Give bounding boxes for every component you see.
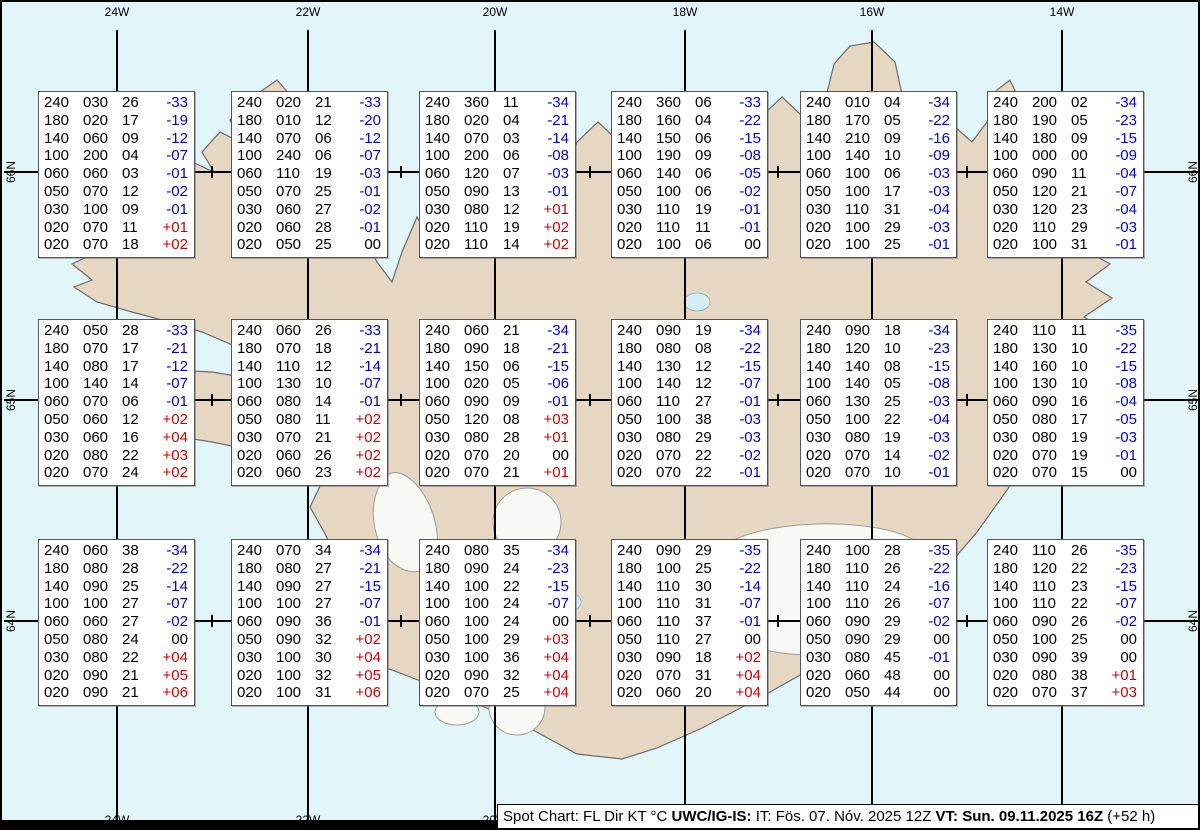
- dir-value: 080: [276, 560, 315, 578]
- fl-value: 050: [993, 411, 1032, 429]
- spot-row: 18016004-22: [617, 112, 761, 130]
- fl-value: 020: [806, 236, 845, 254]
- spot-row: 06007006-01: [44, 393, 188, 411]
- kt-value: 21: [1071, 183, 1098, 201]
- temp-value: -19: [149, 112, 188, 130]
- dir-value: 090: [464, 340, 503, 358]
- temp-value: 00: [149, 631, 188, 649]
- fl-value: 100: [44, 147, 83, 165]
- spot-row: 06009026-02: [993, 613, 1137, 631]
- temp-value: -04: [1098, 393, 1137, 411]
- fl-value: 020: [806, 684, 845, 702]
- dir-value: 060: [83, 165, 122, 183]
- fl-value: 100: [425, 147, 464, 165]
- spot-row: 10010027-07: [44, 595, 188, 613]
- spot-row: 24009018-34: [806, 322, 950, 340]
- temp-value: -34: [722, 322, 761, 340]
- dir-value: 060: [464, 322, 503, 340]
- dir-value: 070: [276, 340, 315, 358]
- fl-value: 140: [993, 358, 1032, 376]
- temp-value: -08: [1098, 375, 1137, 393]
- spot-row: 03012023-04: [993, 201, 1137, 219]
- kt-value: 22: [503, 578, 530, 596]
- kt-value: 17: [122, 340, 149, 358]
- dir-value: 190: [656, 147, 695, 165]
- spot-row: 14011023-15: [993, 578, 1137, 596]
- dir-value: 120: [845, 340, 884, 358]
- fl-value: 030: [425, 429, 464, 447]
- kt-value: 28: [503, 429, 530, 447]
- spot-row: 05010029+03: [425, 631, 569, 649]
- fl-value: 060: [237, 165, 276, 183]
- kt-value: 26: [315, 322, 342, 340]
- temp-value: 00: [1098, 649, 1137, 667]
- kt-value: 17: [884, 183, 911, 201]
- dir-value: 130: [656, 358, 695, 376]
- temp-value: +03: [530, 631, 569, 649]
- dir-value: 100: [276, 667, 315, 685]
- kt-value: 25: [884, 236, 911, 254]
- spot-row: 18002004-21: [425, 112, 569, 130]
- kt-value: 23: [315, 464, 342, 482]
- temp-value: -23: [911, 340, 950, 358]
- kt-value: 05: [503, 375, 530, 393]
- dir-value: 070: [1032, 447, 1071, 465]
- kt-value: 19: [315, 165, 342, 183]
- dir-value: 070: [276, 542, 315, 560]
- spot-row: 05007025-01: [237, 183, 381, 201]
- spot-box: 24010028-3518011026-2214011024-161001102…: [800, 539, 957, 706]
- kt-value: 09: [695, 147, 722, 165]
- spot-row: 02007011+01: [44, 219, 188, 237]
- spot-row: 14011012-14: [237, 358, 381, 376]
- fl-value: 020: [237, 447, 276, 465]
- kt-value: 18: [315, 340, 342, 358]
- fl-value: 020: [425, 684, 464, 702]
- kt-value: 11: [1071, 165, 1098, 183]
- spot-box: 24009029-3518010025-2214011030-141001103…: [611, 539, 768, 706]
- fl-value: 030: [806, 429, 845, 447]
- spot-row: 06009016-04: [993, 393, 1137, 411]
- temp-value: +02: [342, 447, 381, 465]
- dir-value: 110: [845, 578, 884, 596]
- spot-row: 02009032+04: [425, 667, 569, 685]
- dir-value: 080: [83, 358, 122, 376]
- fl-value: 100: [806, 595, 845, 613]
- temp-value: +02: [342, 429, 381, 447]
- dir-value: 010: [276, 112, 315, 130]
- dir-value: 060: [276, 322, 315, 340]
- degree-tick: [400, 166, 402, 178]
- temp-value: -01: [722, 201, 761, 219]
- dir-value: 030: [83, 94, 122, 112]
- temp-value: 00: [722, 631, 761, 649]
- temp-value: +01: [1098, 667, 1137, 685]
- spot-row: 14008017-12: [44, 358, 188, 376]
- dir-value: 070: [464, 684, 503, 702]
- spot-row: 14021009-16: [806, 130, 950, 148]
- kt-value: 26: [884, 560, 911, 578]
- degree-tick: [589, 166, 591, 178]
- temp-value: +04: [722, 684, 761, 702]
- dir-value: 130: [845, 393, 884, 411]
- fl-value: 140: [44, 130, 83, 148]
- temp-value: -01: [530, 183, 569, 201]
- dir-value: 060: [83, 542, 122, 560]
- dir-value: 090: [1032, 649, 1071, 667]
- dir-value: 070: [656, 447, 695, 465]
- spot-row: 0200701500: [993, 464, 1137, 482]
- fl-value: 240: [617, 322, 656, 340]
- kt-value: 22: [695, 447, 722, 465]
- fl-value: 020: [425, 219, 464, 237]
- spot-row: 03008029-03: [617, 429, 761, 447]
- temp-value: -03: [911, 393, 950, 411]
- spot-row: 02007024+02: [44, 464, 188, 482]
- fl-value: 020: [993, 667, 1032, 685]
- fl-value: 180: [806, 560, 845, 578]
- spot-row: 0200702000: [425, 447, 569, 465]
- dir-value: 110: [1032, 595, 1071, 613]
- kt-value: 24: [503, 560, 530, 578]
- kt-value: 27: [315, 595, 342, 613]
- temp-value: -03: [722, 411, 761, 429]
- longitude-label-top: 24W: [105, 5, 130, 19]
- kt-value: 29: [695, 429, 722, 447]
- spot-row: 02006026+02: [237, 447, 381, 465]
- kt-value: 25: [1071, 631, 1098, 649]
- kt-value: 04: [503, 112, 530, 130]
- spot-box: 24001004-3418017005-2214021009-161001401…: [800, 91, 957, 258]
- dir-value: 090: [656, 542, 695, 560]
- kt-value: 24: [503, 613, 530, 631]
- temp-value: -08: [722, 147, 761, 165]
- dir-value: 090: [464, 183, 503, 201]
- spot-row: 24006038-34: [44, 542, 188, 560]
- fl-value: 030: [617, 649, 656, 667]
- temp-value: -03: [911, 183, 950, 201]
- temp-value: +02: [149, 236, 188, 254]
- degree-tick: [589, 615, 591, 627]
- spot-row: 03009018+02: [617, 649, 761, 667]
- temp-value: +03: [1098, 684, 1137, 702]
- dir-value: 110: [656, 613, 695, 631]
- fl-value: 180: [237, 340, 276, 358]
- spot-box: 24036006-3318016004-2214015006-151001900…: [611, 91, 768, 258]
- spot-box: 24003026-3318002017-1914006009-121002000…: [38, 91, 195, 258]
- kt-value: 00: [1071, 147, 1098, 165]
- kt-value: 27: [315, 560, 342, 578]
- temp-value: -12: [149, 130, 188, 148]
- spot-row: 18008008-22: [617, 340, 761, 358]
- spot-row: 10019009-08: [617, 147, 761, 165]
- fl-value: 100: [617, 147, 656, 165]
- temp-value: -21: [342, 560, 381, 578]
- temp-value: +02: [342, 464, 381, 482]
- fl-value: 180: [806, 112, 845, 130]
- temp-value: +02: [530, 219, 569, 237]
- fl-value: 180: [617, 112, 656, 130]
- spot-row: 03011031-04: [806, 201, 950, 219]
- longitude-label-top: 22W: [296, 5, 321, 19]
- temp-value: -15: [1098, 358, 1137, 376]
- fl-value: 180: [44, 112, 83, 130]
- kt-value: 31: [695, 667, 722, 685]
- temp-value: -09: [911, 147, 950, 165]
- spot-row: 10020006-08: [425, 147, 569, 165]
- spot-box: 24009018-3418012010-2314014008-151001400…: [800, 319, 957, 486]
- kt-value: 06: [695, 183, 722, 201]
- fl-value: 020: [993, 464, 1032, 482]
- spot-row: 06011019-03: [237, 165, 381, 183]
- kt-value: 34: [315, 542, 342, 560]
- dir-value: 090: [276, 578, 315, 596]
- fl-value: 060: [44, 613, 83, 631]
- kt-value: 15: [1071, 464, 1098, 482]
- spot-row: 18007017-21: [44, 340, 188, 358]
- longitude-label-top: 20W: [483, 5, 508, 19]
- temp-value: -03: [911, 219, 950, 237]
- temp-value: 00: [911, 684, 950, 702]
- kt-value: 16: [1071, 393, 1098, 411]
- kt-value: 36: [503, 649, 530, 667]
- temp-value: -03: [1098, 219, 1137, 237]
- fl-value: 020: [993, 684, 1032, 702]
- temp-value: -21: [149, 340, 188, 358]
- fl-value: 020: [425, 667, 464, 685]
- dir-value: 090: [845, 322, 884, 340]
- spot-box: 24011011-3518013010-2214016010-151001301…: [987, 319, 1144, 486]
- kt-value: 09: [884, 130, 911, 148]
- kt-value: 32: [315, 667, 342, 685]
- temp-value: -33: [342, 322, 381, 340]
- kt-value: 08: [503, 411, 530, 429]
- fl-value: 020: [44, 219, 83, 237]
- kt-value: 18: [122, 236, 149, 254]
- temp-value: -07: [1098, 595, 1137, 613]
- temp-value: +01: [530, 464, 569, 482]
- spot-row: 14006009-12: [44, 130, 188, 148]
- dir-value: 100: [464, 631, 503, 649]
- kt-value: 37: [1071, 684, 1098, 702]
- temp-value: +02: [149, 411, 188, 429]
- kt-value: 21: [503, 464, 530, 482]
- fl-value: 180: [993, 112, 1032, 130]
- kt-value: 21: [503, 322, 530, 340]
- dir-value: 110: [845, 201, 884, 219]
- kt-value: 12: [695, 375, 722, 393]
- dir-value: 070: [464, 130, 503, 148]
- kt-value: 12: [122, 411, 149, 429]
- spot-row: 24009019-34: [617, 322, 761, 340]
- fl-value: 050: [44, 631, 83, 649]
- fl-value: 100: [617, 595, 656, 613]
- kt-value: 17: [122, 112, 149, 130]
- kt-value: 22: [1071, 560, 1098, 578]
- temp-value: +03: [149, 447, 188, 465]
- kt-value: 38: [695, 411, 722, 429]
- kt-value: 45: [884, 649, 911, 667]
- fl-value: 020: [617, 447, 656, 465]
- dir-value: 120: [1032, 183, 1071, 201]
- temp-value: -01: [911, 236, 950, 254]
- kt-value: 06: [884, 165, 911, 183]
- kt-value: 24: [884, 578, 911, 596]
- temp-value: -34: [911, 94, 950, 112]
- dir-value: 060: [83, 429, 122, 447]
- spot-row: 24003026-33: [44, 94, 188, 112]
- spot-box: 24011026-3518012022-2314011023-151001102…: [987, 539, 1144, 706]
- fl-value: 050: [806, 631, 845, 649]
- fl-value: 050: [425, 183, 464, 201]
- dir-value: 110: [276, 358, 315, 376]
- spot-row: 02008038+01: [993, 667, 1137, 685]
- kt-value: 12: [315, 358, 342, 376]
- dir-value: 060: [276, 201, 315, 219]
- fl-value: 060: [44, 165, 83, 183]
- temp-value: -03: [911, 429, 950, 447]
- dir-value: 100: [83, 201, 122, 219]
- kt-value: 14: [122, 375, 149, 393]
- temp-value: +02: [342, 631, 381, 649]
- temp-value: -01: [911, 649, 950, 667]
- spot-row: 02006028-01: [237, 219, 381, 237]
- temp-value: -07: [1098, 183, 1137, 201]
- temp-value: -23: [1098, 112, 1137, 130]
- latitude-label-left: 64N: [4, 610, 18, 632]
- temp-value: -34: [911, 322, 950, 340]
- temp-value: +02: [342, 411, 381, 429]
- spot-row: 24020002-34: [993, 94, 1137, 112]
- temp-value: -05: [722, 165, 761, 183]
- fl-value: 020: [425, 236, 464, 254]
- kt-value: 19: [503, 219, 530, 237]
- spot-row: 02010031-01: [993, 236, 1137, 254]
- temp-value: -33: [149, 322, 188, 340]
- spot-row: 24001004-34: [806, 94, 950, 112]
- fl-value: 060: [993, 165, 1032, 183]
- temp-value: +01: [530, 201, 569, 219]
- temp-value: -09: [1098, 147, 1137, 165]
- temp-value: -03: [1098, 429, 1137, 447]
- dir-value: 080: [1032, 667, 1071, 685]
- spot-box: 24007034-3418008027-2114009027-151001002…: [231, 539, 388, 706]
- kt-value: 17: [1071, 411, 1098, 429]
- dir-value: 080: [656, 340, 695, 358]
- dir-value: 050: [276, 236, 315, 254]
- dir-value: 070: [845, 464, 884, 482]
- kt-value: 38: [122, 542, 149, 560]
- spot-row: 10014010-09: [806, 147, 950, 165]
- dir-value: 070: [83, 464, 122, 482]
- fl-value: 100: [425, 375, 464, 393]
- dir-value: 110: [656, 578, 695, 596]
- dir-value: 060: [276, 219, 315, 237]
- spot-row: 18012010-23: [806, 340, 950, 358]
- temp-value: -22: [722, 112, 761, 130]
- fl-value: 140: [44, 358, 83, 376]
- fl-value: 020: [237, 236, 276, 254]
- fl-value: 240: [806, 322, 845, 340]
- fl-value: 100: [993, 595, 1032, 613]
- kt-value: 31: [1071, 236, 1098, 254]
- dir-value: 080: [1032, 429, 1071, 447]
- kt-value: 21: [315, 94, 342, 112]
- kt-value: 06: [503, 147, 530, 165]
- kt-value: 08: [695, 340, 722, 358]
- dir-value: 070: [464, 447, 503, 465]
- temp-value: +01: [530, 429, 569, 447]
- dir-value: 170: [845, 112, 884, 130]
- spot-row: 02007022-02: [617, 447, 761, 465]
- fl-value: 100: [806, 375, 845, 393]
- kt-value: 22: [122, 447, 149, 465]
- spot-row: 02010032+05: [237, 667, 381, 685]
- temp-value: -06: [530, 375, 569, 393]
- spot-row: 10024006-07: [237, 147, 381, 165]
- dir-value: 100: [845, 542, 884, 560]
- dir-value: 190: [1032, 112, 1071, 130]
- spot-row: 03011019-01: [617, 201, 761, 219]
- fl-value: 030: [237, 201, 276, 219]
- spot-row: 02007031+04: [617, 667, 761, 685]
- spot-row: 14018009-15: [993, 130, 1137, 148]
- temp-value: +05: [342, 667, 381, 685]
- spot-box: 24002021-3318001012-2014007006-121002400…: [231, 91, 388, 258]
- dir-value: 070: [656, 667, 695, 685]
- fl-value: 100: [237, 375, 276, 393]
- kt-value: 12: [503, 201, 530, 219]
- temp-value: -01: [911, 464, 950, 482]
- dir-value: 100: [1032, 631, 1071, 649]
- temp-value: -33: [722, 94, 761, 112]
- dir-value: 110: [656, 219, 695, 237]
- dir-value: 130: [276, 375, 315, 393]
- spot-row: 24006026-33: [237, 322, 381, 340]
- dir-value: 100: [276, 649, 315, 667]
- dir-value: 100: [845, 165, 884, 183]
- fl-value: 180: [993, 560, 1032, 578]
- dir-value: 080: [83, 631, 122, 649]
- spot-row: 03010009-01: [44, 201, 188, 219]
- kt-value: 09: [1071, 130, 1098, 148]
- latitude-label-right: 64N: [1186, 610, 1200, 632]
- spot-row: 02007037+03: [993, 684, 1137, 702]
- spot-row: 10000000-09: [993, 147, 1137, 165]
- dir-value: 100: [83, 595, 122, 613]
- kt-value: 04: [695, 112, 722, 130]
- spot-row: 24036006-33: [617, 94, 761, 112]
- spot-row: 14009025-14: [44, 578, 188, 596]
- caption-source: UWC/IG-IS:: [672, 808, 752, 825]
- spot-box: 24005028-3318007017-2114008017-121001401…: [38, 319, 195, 486]
- fl-value: 050: [237, 183, 276, 201]
- fl-value: 240: [237, 94, 276, 112]
- spot-row: 18012022-23: [993, 560, 1137, 578]
- dir-value: 070: [83, 219, 122, 237]
- spot-box: 24006038-3418008028-2214009025-141001002…: [38, 539, 195, 706]
- degree-tick: [777, 394, 779, 406]
- spot-row: 10011022-07: [993, 595, 1137, 613]
- temp-value: -02: [149, 183, 188, 201]
- kt-value: 14: [503, 236, 530, 254]
- fl-value: 020: [806, 447, 845, 465]
- dir-value: 070: [1032, 684, 1071, 702]
- kt-value: 29: [1071, 219, 1098, 237]
- dir-value: 020: [464, 375, 503, 393]
- spot-row: 06013025-03: [806, 393, 950, 411]
- dir-value: 090: [83, 667, 122, 685]
